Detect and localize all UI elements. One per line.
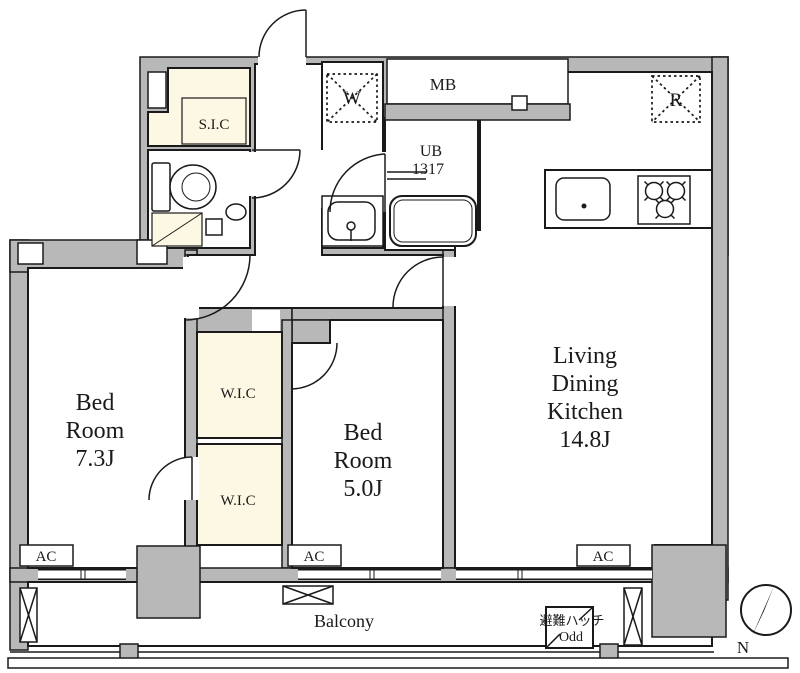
compass-north-label: N (737, 638, 749, 657)
ldk-label-1: Living (553, 343, 617, 369)
balcony-column-right (652, 545, 726, 637)
bedroom2-label-3: 5.0J (343, 476, 382, 502)
balcony-partition-left (20, 588, 37, 642)
bedroom2-label-2: Room (334, 448, 393, 474)
fridge-label: R (670, 90, 683, 111)
bedroom1-label-1: Bed (76, 390, 115, 416)
evacuation-hatch-note: Odd (559, 630, 583, 645)
floor-plan-drawing: AC AC AC N S.I.C MB UB 1317 W R Living D… (0, 0, 800, 673)
toilet-counter (206, 219, 222, 235)
svg-text:AC: AC (36, 549, 57, 565)
ub-label-2: 1317 (412, 161, 444, 178)
bedroom2-window (298, 570, 441, 579)
bedroom1-label-2: Room (66, 418, 125, 444)
ac-unit-bedroom2: AC (288, 545, 341, 566)
building-outline-bottom (8, 644, 788, 668)
ac-unit-ldk: AC (577, 545, 630, 566)
mb-label: MB (430, 75, 456, 94)
ldk-label-4: 14.8J (559, 427, 610, 453)
svg-text:AC: AC (593, 549, 614, 565)
wic-lower-label: W.I.C (220, 493, 255, 509)
entry-niche (148, 72, 166, 108)
hand-basin-icon (226, 204, 246, 220)
ldk-floor (455, 72, 712, 568)
outer-wall-notch-a (18, 243, 43, 264)
ldk-label-2: Dining (552, 371, 619, 397)
wic-upper-label: W.I.C (220, 386, 255, 402)
ldk-window (456, 570, 652, 579)
svg-text:AC: AC (304, 549, 325, 565)
floor-plan-page: AC AC AC N S.I.C MB UB 1317 W R Living D… (0, 0, 800, 673)
entrance-door-arc (259, 10, 306, 57)
ldk-label-3: Kitchen (547, 399, 623, 425)
entry-step (152, 213, 202, 246)
balcony-partition-right (624, 588, 642, 645)
bedroom1-window (38, 570, 126, 579)
wall-service-box (512, 96, 527, 110)
evacuation-hatch-label: 避難ハッチ (539, 613, 604, 628)
ac-unit-bedroom1: AC (20, 545, 73, 566)
entrance-opening (258, 50, 306, 66)
kitchen-counter (545, 170, 712, 228)
ub-label-1: UB (420, 143, 442, 160)
balcony-column-mid (137, 546, 200, 618)
balcony-label: Balcony (314, 611, 374, 631)
mb-bottom-wall (385, 104, 570, 120)
balcony-hatch-ladder (283, 586, 333, 604)
meter-box-niche (387, 59, 568, 104)
faucet-icon (582, 204, 587, 209)
washer-label: W (343, 88, 361, 109)
compass: N (737, 585, 791, 657)
sic-label: S.I.C (199, 117, 230, 133)
bedroom1-label-3: 7.3J (75, 446, 114, 472)
wic-upper-floor (197, 332, 282, 438)
bedroom2-label-1: Bed (344, 420, 383, 446)
